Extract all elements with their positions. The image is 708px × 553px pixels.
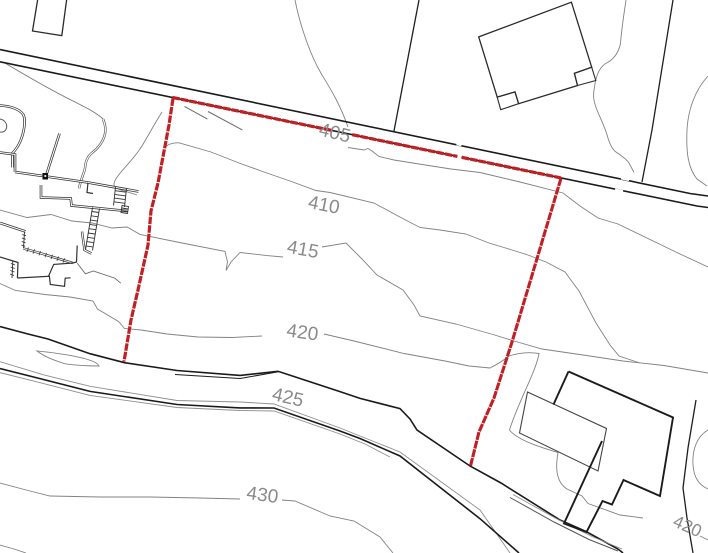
svg-text:430: 430 bbox=[245, 483, 279, 508]
svg-text:420: 420 bbox=[285, 320, 319, 345]
